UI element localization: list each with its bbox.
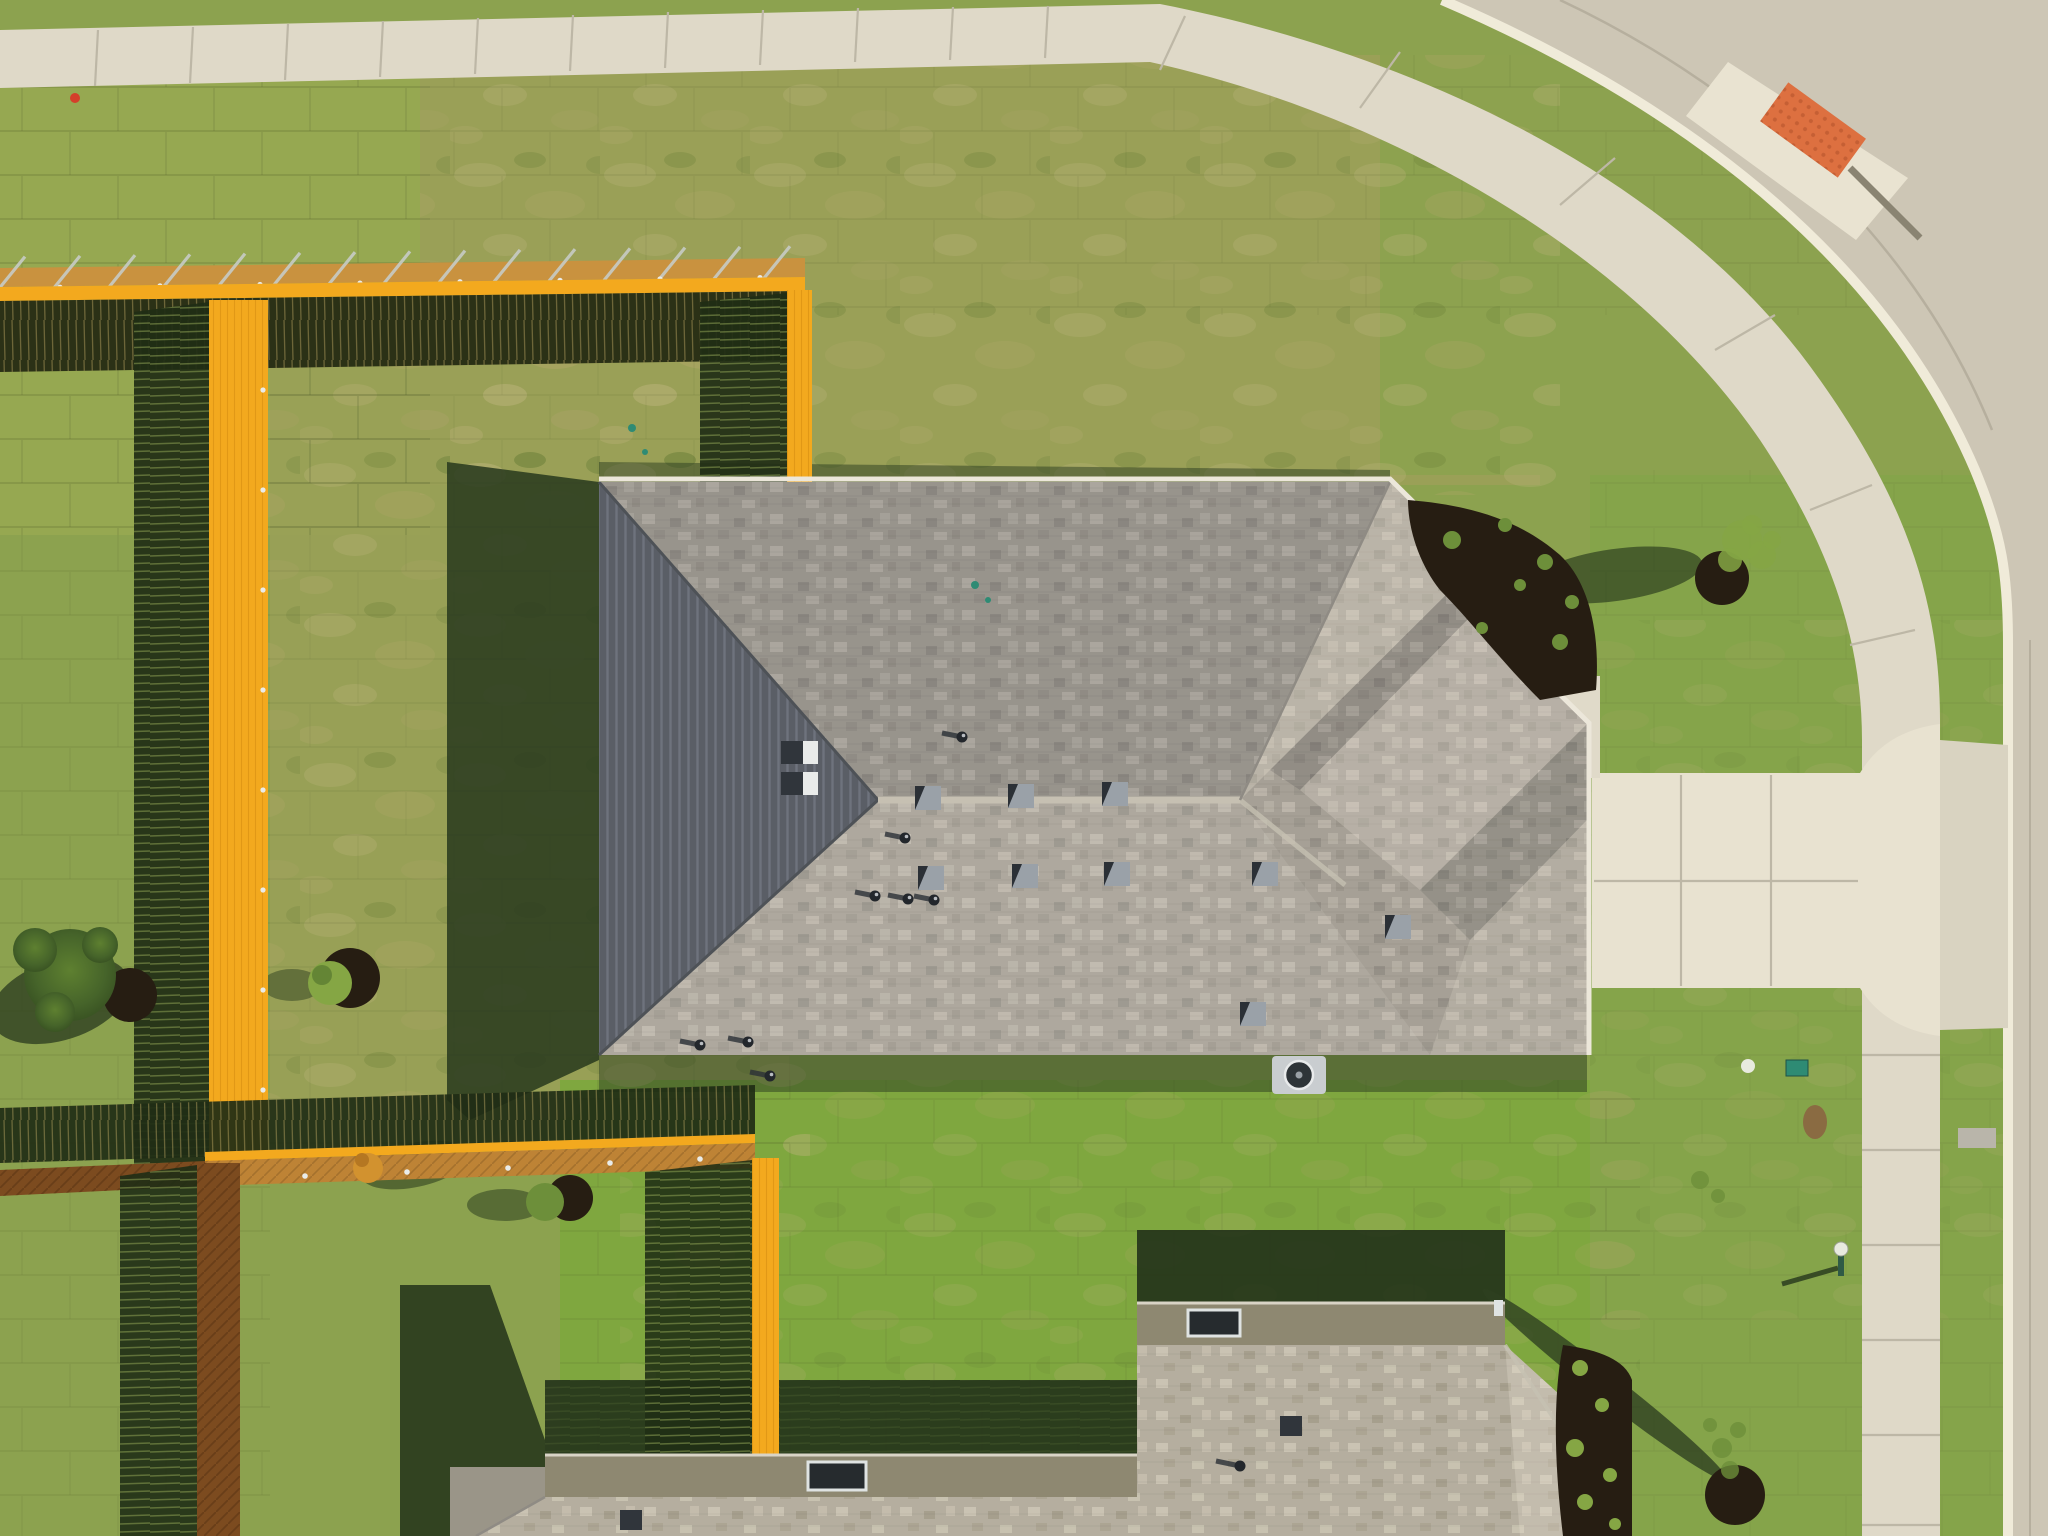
shrub <box>308 961 352 1005</box>
box-vent <box>781 772 805 795</box>
pipe-vent <box>957 732 968 743</box>
east-bed <box>1556 1345 1632 1536</box>
fence-post-cap <box>260 887 265 892</box>
teal-marker <box>628 424 636 432</box>
fence-post-cap <box>260 787 265 792</box>
pipe-vent <box>1235 1461 1246 1472</box>
pipe-vent <box>743 1037 754 1048</box>
teal-marker <box>985 597 991 603</box>
left-fence-shadow-streaks <box>134 302 209 1176</box>
pipe-vent <box>929 895 940 906</box>
tree-canopy <box>1712 1438 1732 1458</box>
lamp-globe <box>1834 1242 1848 1256</box>
window <box>808 1462 866 1490</box>
plant <box>1498 518 1512 532</box>
fence-post-cap <box>607 1160 613 1166</box>
lower-fence-shadow-streaks <box>120 1165 197 1536</box>
pipe-vent-glint <box>905 835 909 839</box>
fence-post-cap <box>404 1169 410 1175</box>
shadow-streaks <box>545 1380 1137 1462</box>
teal-marker <box>642 449 648 455</box>
house-shadow-west <box>447 462 599 1120</box>
pipe-vent-glint <box>748 1039 752 1043</box>
plant <box>1537 554 1553 570</box>
connector-fence-shadow-streaks <box>645 1160 752 1470</box>
fence-post-cap <box>260 587 265 592</box>
fence-post-cap <box>260 1087 265 1092</box>
shrub-detail <box>312 965 332 985</box>
plant <box>1565 595 1579 609</box>
shrub <box>526 1183 564 1221</box>
second-roof-left-shingles <box>476 1497 1137 1536</box>
fence-post-cap <box>302 1173 308 1179</box>
pipe-vent <box>900 833 911 844</box>
plant <box>1476 622 1488 634</box>
tree-canopy <box>35 992 75 1032</box>
fence-post-cap <box>505 1165 511 1171</box>
driveway-apron <box>1940 740 2008 1030</box>
pipe-vent-glint <box>962 734 966 738</box>
utility-box <box>1786 1060 1808 1076</box>
fence-post-cap <box>260 987 265 992</box>
top-fence-face-gaps <box>0 291 805 372</box>
tree-canopy <box>13 928 57 972</box>
tree-canopy <box>1763 531 1781 549</box>
utility-dome <box>1741 1059 1755 1073</box>
utility-pad <box>1958 1128 1996 1148</box>
tree-canopy <box>1703 1418 1717 1432</box>
lower-fence-planks <box>197 1163 240 1536</box>
pipe-vent-glint <box>700 1042 704 1046</box>
plant <box>1603 1468 1617 1482</box>
plant <box>1514 579 1526 591</box>
fence-post-cap <box>260 487 265 492</box>
ac-unit <box>1272 1056 1326 1094</box>
plant <box>1577 1494 1593 1510</box>
window <box>1188 1310 1240 1336</box>
pipe-vent-glint <box>875 893 879 897</box>
ac-fan-hub <box>1296 1072 1303 1079</box>
plant <box>1595 1398 1609 1412</box>
roof-vent <box>1280 1416 1302 1436</box>
pipe-vent-glint <box>908 896 912 900</box>
pipe-vent <box>695 1040 706 1051</box>
scene-svg <box>0 0 2048 1536</box>
downspout <box>1494 1300 1503 1316</box>
second-house-shadow-right <box>1137 1230 1505 1310</box>
plant <box>1566 1439 1584 1457</box>
plant <box>1443 531 1461 549</box>
box-vent <box>781 741 805 764</box>
pipe-vent <box>765 1071 776 1082</box>
tree-canopy <box>1718 548 1742 572</box>
tree-canopy <box>1691 1171 1709 1189</box>
fence-post-cap <box>697 1156 703 1162</box>
pipe-vent-glint <box>770 1073 774 1077</box>
right-fence-shadow-streaks <box>700 293 787 482</box>
plant <box>1572 1360 1588 1376</box>
pipe-vent-glint <box>934 897 938 901</box>
tree-canopy <box>82 927 118 963</box>
box-vent-lid <box>803 772 818 795</box>
aerial-photo <box>0 0 2048 1536</box>
tree-canopy <box>1721 1461 1739 1479</box>
pipe-vent <box>903 894 914 905</box>
roof-vent <box>620 1510 642 1530</box>
tree-canopy <box>1730 1422 1746 1438</box>
fence-post-cap <box>260 387 265 392</box>
plant <box>1609 1518 1621 1530</box>
mulch-bed <box>1556 1345 1632 1536</box>
teal-marker <box>971 581 979 589</box>
red-marker <box>70 93 80 103</box>
pipe-vent <box>870 891 881 902</box>
right-fence-planks <box>787 290 812 482</box>
plant <box>1552 634 1568 650</box>
left-fence-planks <box>209 300 268 1163</box>
tree-canopy <box>1742 515 1762 535</box>
dirt-patch <box>1803 1105 1827 1139</box>
fence-post-cap <box>260 687 265 692</box>
box-vent-lid <box>803 741 818 764</box>
orange-shrub-detail <box>355 1153 369 1167</box>
connector-fence-planks <box>752 1158 779 1462</box>
tree-canopy <box>1711 1189 1725 1203</box>
